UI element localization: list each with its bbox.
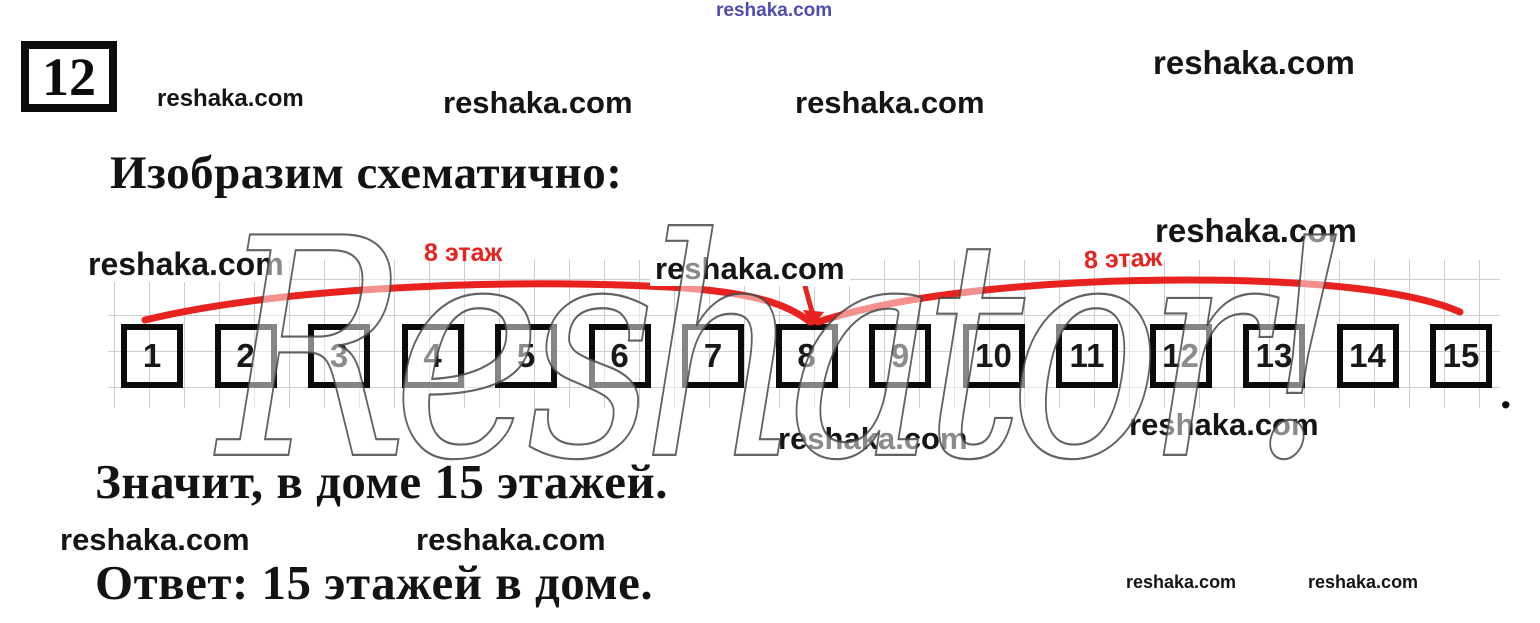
floor8-arrow-line <box>805 286 812 312</box>
watermark: reshaka.com <box>1124 408 1324 442</box>
watermark: reshaka.com <box>60 523 250 557</box>
watermark: reshaka.com <box>773 422 973 456</box>
watermark: reshaka.com <box>416 523 606 557</box>
watermark-top: reshaka.com <box>716 1 832 22</box>
conclusion-text: Значит, в доме 15 этажей. <box>95 453 668 510</box>
problem-number-box: 12 <box>21 41 117 112</box>
diagram-period: . <box>1500 366 1512 419</box>
watermark: reshaka.com <box>443 86 633 120</box>
left-arc-label: 8 этаж <box>424 239 502 268</box>
answer-text: Ответ: 15 этажей в доме. <box>95 554 653 611</box>
watermark: reshaka.com <box>157 86 304 112</box>
problem-number: 12 <box>42 46 96 108</box>
watermark: reshaka.com <box>1308 573 1418 593</box>
right-arc <box>818 280 1460 322</box>
left-arc <box>145 284 810 322</box>
heading: Изобразим схематично: <box>110 146 622 200</box>
watermark: reshaka.com <box>1126 573 1236 593</box>
watermark: reshaka.com <box>795 86 985 120</box>
watermark: reshaka.com <box>83 247 289 282</box>
watermark: reshaka.com <box>1153 45 1355 81</box>
watermark: reshaka.com <box>650 252 850 286</box>
watermark: reshaka.com <box>1150 213 1362 249</box>
